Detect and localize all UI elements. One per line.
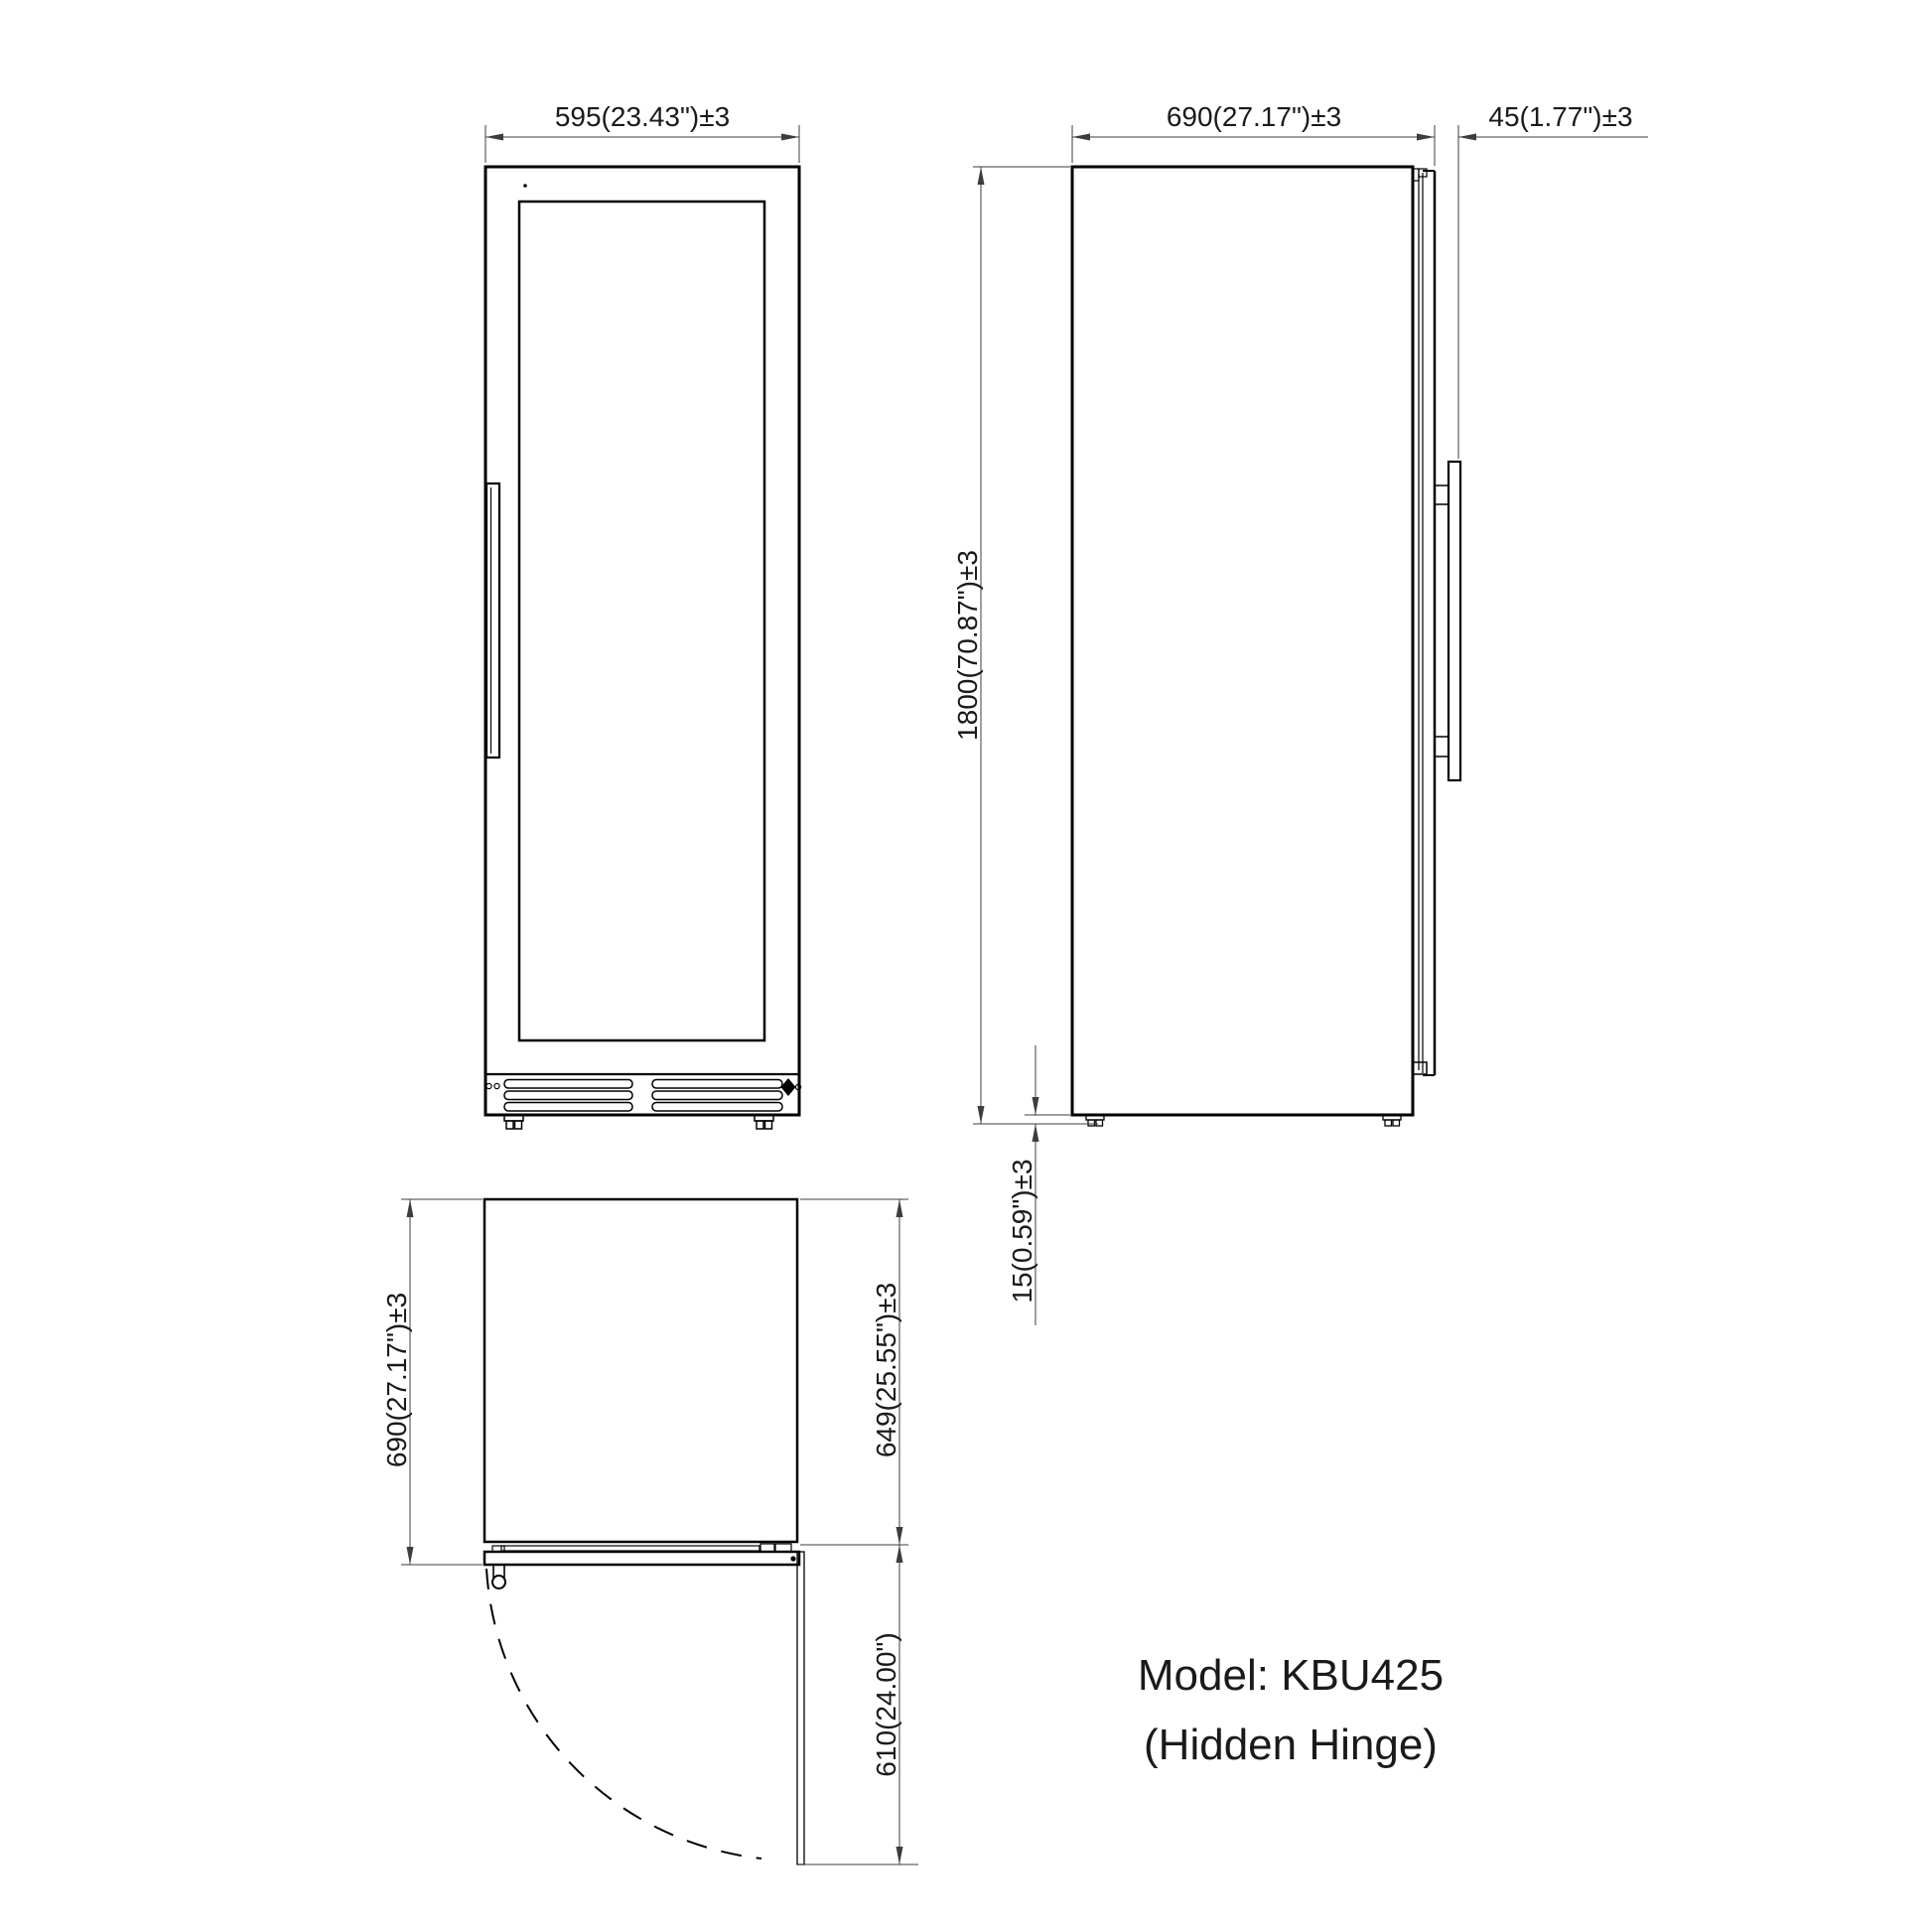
technical-drawing-page: 595(23.43")±3	[0, 0, 1932, 1932]
top-body-depth-dim-label: 649(25.55")±3	[871, 1283, 901, 1457]
top-overall-depth-dim-label: 690(27.17")±3	[381, 1293, 412, 1467]
front-width-dimension: 595(23.43")±3	[485, 101, 799, 163]
door-swing-dimension: 610(24.00")	[871, 1545, 903, 1864]
model-title-line1: Model: KBU425	[1138, 1651, 1444, 1700]
top-view	[484, 1199, 918, 1864]
front-door-handle	[486, 483, 499, 758]
top-door-handle	[492, 1565, 505, 1588]
vent-grille-right	[652, 1080, 782, 1112]
height-dim-label: 1800(70.87")±3	[952, 550, 983, 741]
door-gasket	[501, 1546, 759, 1551]
ground-clearance-dimension: 15(0.59")±3	[1007, 1045, 1070, 1325]
side-view	[1072, 167, 1460, 1126]
side-depth-dim-label: 690(27.17")±3	[1167, 101, 1341, 132]
hinge-pivot-mark	[790, 1556, 795, 1561]
front-width-dim-label: 595(23.43")±3	[555, 101, 730, 132]
side-door-profile	[1413, 169, 1435, 1075]
front-door-outline	[485, 167, 799, 1115]
screw-hole	[486, 1083, 491, 1088]
dimension-drawing: 595(23.43")±3	[0, 0, 1932, 1932]
ground-clearance-dim-label: 15(0.59")±3	[1007, 1159, 1037, 1303]
door-swing-arc	[486, 1569, 761, 1859]
door-swing-dim-label: 610(24.00")	[871, 1632, 901, 1776]
front-kick-plate	[485, 1074, 801, 1111]
side-cabinet-body	[1072, 167, 1413, 1115]
side-leveling-feet	[1086, 1115, 1401, 1126]
model-title-line2: (Hidden Hinge)	[1144, 1721, 1438, 1769]
handle-protrusion-dim-label: 45(1.77")±3	[1488, 101, 1632, 132]
front-leveling-feet	[504, 1115, 773, 1129]
model-title: Model: KBU425 (Hidden Hinge)	[1138, 1651, 1444, 1769]
side-door-handle	[1435, 462, 1460, 780]
drain-diamond-mark	[781, 1078, 796, 1096]
top-overall-depth-dimension: 690(27.17")±3	[381, 1199, 483, 1565]
top-door-closed	[484, 1544, 799, 1565]
bottom-hinge-detail	[1413, 1062, 1427, 1074]
screw-hole	[494, 1083, 499, 1088]
vent-grille-left	[504, 1080, 632, 1112]
height-dimension: 1800(70.87")±3	[952, 167, 1098, 1124]
front-corner-mark	[523, 184, 527, 188]
top-cabinet-body	[484, 1199, 797, 1542]
front-view	[485, 167, 801, 1129]
handle-protrusion-dimension: 45(1.77")±3	[1458, 101, 1648, 459]
side-depth-dimension: 690(27.17")±3	[1072, 101, 1435, 166]
top-body-depth-dimension: 649(25.55")±3	[800, 1199, 908, 1545]
front-glass-panel	[519, 202, 764, 1040]
door-panel	[484, 1552, 799, 1565]
